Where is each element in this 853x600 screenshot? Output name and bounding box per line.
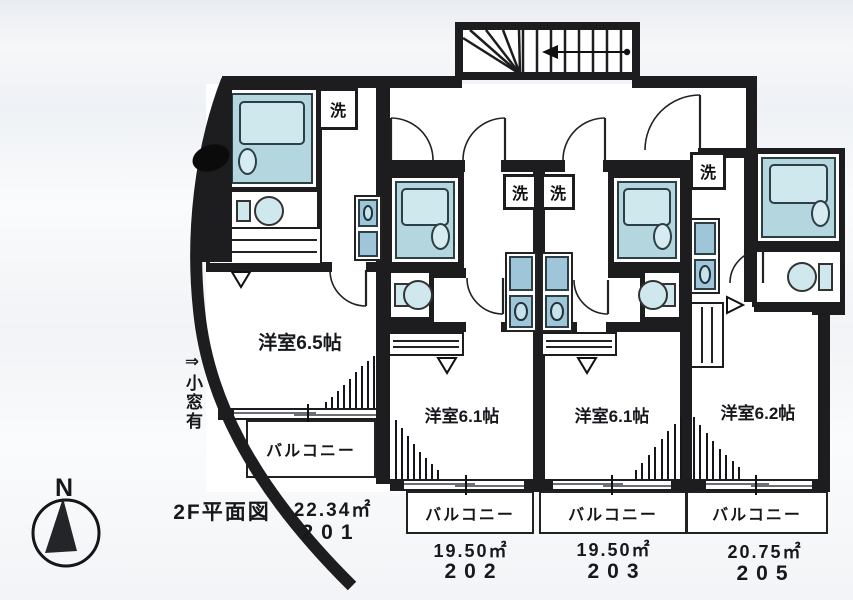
balcony-202: バルコニー <box>406 491 534 534</box>
wall <box>386 322 466 332</box>
wall <box>671 479 682 491</box>
kitchen-202 <box>505 252 537 332</box>
kitchen-201 <box>354 195 382 261</box>
laundry-box-205: 洗 <box>690 152 726 190</box>
balcony-label-205: バルコニー <box>712 501 802 525</box>
compass-north-label: N <box>55 474 73 503</box>
unit-205-room-label: 洋室6.2帖 <box>721 399 796 424</box>
unit-202-room-label: 洋室6.1帖 <box>425 402 500 427</box>
laundry-box-201: 洗 <box>318 88 358 130</box>
staircase <box>455 22 640 80</box>
laundry-box-202: 洗 <box>503 174 537 210</box>
closet-203 <box>541 332 617 356</box>
closet-205 <box>690 302 724 368</box>
bathtub-205 <box>752 148 845 247</box>
window-205 <box>706 479 814 491</box>
floor-title: 2F平面図 <box>173 496 271 526</box>
window-note: ⇒小窓有 <box>180 352 205 484</box>
wall <box>608 268 644 278</box>
unit-203-area: 19.50㎡ <box>576 536 651 562</box>
toilet-202 <box>386 268 434 322</box>
laundry-label-205: 洗 <box>700 159 716 183</box>
balcony-205: バルコニー <box>686 491 828 534</box>
unit-203-number: 203 <box>587 560 646 584</box>
laundry-box-203: 洗 <box>541 174 575 210</box>
closet-202 <box>388 332 464 356</box>
kitchen-205 <box>690 218 720 294</box>
wall <box>746 76 757 158</box>
window-201 <box>234 408 376 420</box>
unit-201-area: 22.34㎡ <box>294 495 373 522</box>
hall-wall <box>501 160 565 172</box>
balcony-label-201: バルコニー <box>266 437 356 461</box>
toilet-203 <box>640 268 684 322</box>
wall <box>430 268 466 278</box>
toilet-205 <box>752 247 845 307</box>
wall <box>812 479 820 491</box>
floor-plan: バルコニー バルコニー バルコニー バルコニー 洗 <box>0 0 853 600</box>
laundry-label-201: 洗 <box>330 97 346 121</box>
bathtub-201 <box>222 84 322 193</box>
unit-203-room-label: 洋室6.1帖 <box>575 402 650 427</box>
bathtub-202 <box>386 172 464 268</box>
balcony-201: バルコニー <box>246 420 376 478</box>
closet-201 <box>208 227 322 265</box>
wall <box>366 262 378 272</box>
kitchen-203 <box>541 252 573 332</box>
laundry-label-202: 洗 <box>512 180 528 204</box>
wall <box>606 322 686 332</box>
unit-205-area: 20.75㎡ <box>727 538 802 564</box>
bathtub-203 <box>608 172 686 268</box>
unit-201-number: 201 <box>301 521 360 545</box>
unit-201-room-label: 洋室6.5帖 <box>258 328 341 355</box>
compass <box>33 498 99 566</box>
wall <box>632 76 757 88</box>
wall <box>818 305 830 492</box>
balcony-label-202: バルコニー <box>425 501 515 525</box>
window-202 <box>404 479 526 491</box>
wall <box>524 479 535 491</box>
laundry-label-203: 洗 <box>550 180 566 204</box>
hall-wall <box>603 160 692 172</box>
unit-205-number: 205 <box>736 562 795 586</box>
window-203 <box>553 479 673 491</box>
hall-wall <box>388 160 465 172</box>
unit-202-number: 202 <box>444 560 503 584</box>
balcony-203: バルコニー <box>539 491 687 534</box>
balcony-label-203: バルコニー <box>568 501 658 525</box>
